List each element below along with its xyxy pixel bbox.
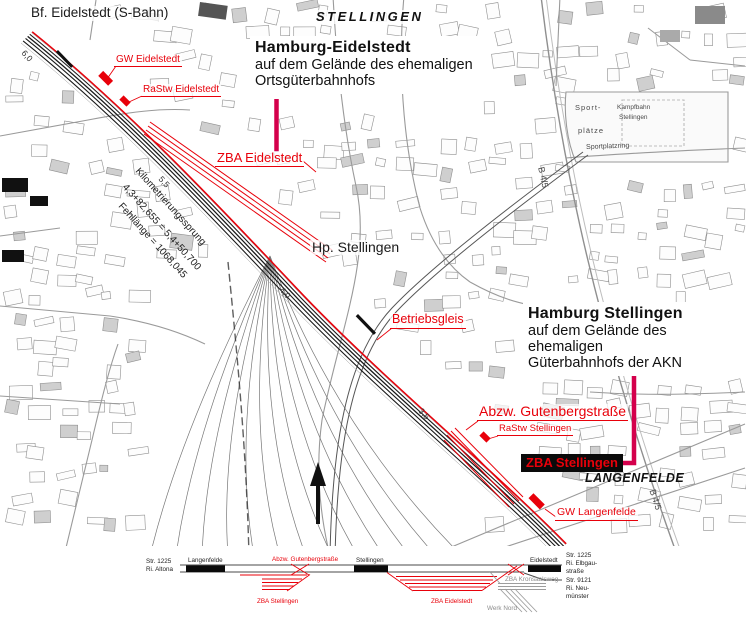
kampfbahn-label-2: Stellingen	[619, 114, 648, 121]
building	[468, 291, 479, 299]
building	[281, 27, 290, 36]
building	[125, 515, 145, 530]
building	[682, 250, 705, 261]
building	[33, 340, 57, 355]
building	[611, 224, 624, 233]
building	[104, 518, 116, 531]
building	[367, 138, 380, 148]
building	[627, 180, 643, 193]
building	[439, 231, 451, 244]
hp-stellingen-label: Hp. Stellingen	[310, 240, 401, 255]
building	[198, 54, 212, 71]
building	[17, 338, 32, 350]
building	[424, 299, 443, 311]
building	[607, 68, 619, 81]
building	[727, 208, 745, 220]
building	[704, 420, 721, 432]
yard-track	[270, 256, 384, 546]
building	[57, 254, 77, 268]
right-route-line3: straße	[566, 568, 584, 575]
building	[53, 357, 69, 366]
building-block	[2, 178, 28, 192]
gw-langenfelde-marker	[529, 493, 545, 509]
building	[489, 366, 505, 378]
building	[62, 91, 74, 104]
building	[30, 472, 45, 482]
yard-track	[176, 256, 270, 546]
building	[703, 518, 713, 531]
building	[420, 341, 431, 355]
building	[446, 272, 458, 279]
building-block	[695, 6, 725, 24]
building	[38, 361, 54, 376]
building	[12, 493, 33, 506]
building	[664, 190, 675, 202]
yard-track	[150, 256, 270, 546]
building	[125, 351, 140, 363]
north-arrow	[310, 462, 326, 524]
building	[509, 274, 529, 287]
building	[637, 75, 655, 91]
region-stellingen-label: STELLINGEN	[314, 10, 425, 24]
building	[31, 268, 49, 284]
right-route-line1: Str. 1225	[566, 552, 592, 559]
building	[495, 142, 513, 154]
building	[103, 318, 119, 333]
building	[531, 226, 547, 241]
building	[590, 224, 602, 233]
building	[374, 299, 386, 309]
building	[4, 205, 17, 218]
building	[729, 424, 741, 434]
building	[678, 496, 702, 511]
building	[472, 254, 484, 265]
building	[605, 256, 618, 263]
eidelstedt-annotation: Hamburg-Eidelstedt auf dem Gelände des e…	[250, 36, 482, 94]
map-page: Bf. Eidelstedt (S-Bahn) STELLINGEN Hambu…	[0, 0, 746, 621]
building	[705, 495, 722, 505]
building	[341, 153, 365, 167]
building	[611, 519, 627, 534]
building	[704, 34, 712, 46]
building	[58, 489, 78, 506]
building	[485, 516, 504, 532]
building	[317, 157, 336, 168]
building	[436, 4, 447, 13]
schematic-stations	[186, 566, 561, 573]
track-schematic: Str. 1225 Ri. Altona Langenfelde Abzw. G…	[0, 545, 746, 621]
building	[413, 163, 437, 177]
right-route-line2: Ri. Elbgau-	[566, 560, 597, 567]
building	[129, 290, 151, 302]
building	[469, 159, 487, 173]
rastw-eidelstedt-marker	[119, 95, 130, 106]
stellingen-label: Stellingen	[356, 557, 384, 564]
building	[628, 32, 639, 44]
building	[375, 158, 385, 167]
building	[536, 200, 553, 214]
building	[657, 274, 671, 287]
building	[658, 209, 668, 217]
building	[660, 247, 676, 260]
building	[608, 269, 618, 284]
building	[101, 291, 111, 299]
building	[321, 212, 340, 218]
building	[486, 2, 501, 19]
building	[682, 31, 690, 38]
sportplaetze-label-2: plätze	[578, 126, 604, 135]
building	[370, 186, 384, 199]
building-block	[660, 30, 680, 42]
building	[495, 340, 514, 353]
building	[495, 29, 512, 46]
building	[394, 271, 407, 287]
yard-track	[270, 256, 332, 546]
building	[469, 362, 482, 371]
right-route-line5: Ri. Neu-	[566, 585, 589, 592]
building	[680, 422, 698, 434]
building	[580, 425, 604, 440]
red-facility-markers	[98, 71, 545, 510]
building	[727, 33, 746, 47]
building	[320, 25, 331, 34]
building	[170, 26, 192, 44]
building	[729, 515, 746, 523]
building	[248, 118, 261, 132]
building	[446, 361, 462, 369]
building	[279, 116, 295, 130]
left-route-line1: Str. 1225	[146, 558, 172, 565]
building	[579, 46, 597, 56]
building	[60, 317, 75, 332]
building	[100, 465, 108, 471]
building	[60, 425, 77, 438]
building	[517, 53, 539, 68]
building	[219, 73, 236, 88]
stellingen-station-bar	[354, 566, 388, 573]
building	[124, 402, 136, 416]
stellingen-annotation-line2: Güterbahnhofs der AKN	[528, 355, 737, 371]
building	[104, 254, 125, 266]
building	[516, 177, 533, 189]
sportplaetze-label-1: Sport-	[575, 103, 601, 112]
abzw-gutenbergstrasse-label: Abzw. Gutenbergstraße	[477, 404, 628, 421]
building	[702, 181, 714, 190]
building	[638, 267, 649, 279]
region-langenfelde-label: LANGENFELDE	[585, 472, 684, 486]
stellingen-annotation-title: Hamburg Stellingen	[528, 305, 737, 323]
building	[14, 313, 26, 325]
building	[568, 276, 578, 283]
building	[484, 102, 494, 114]
zba-eidelstedt-label: ZBA Eidelstedt	[215, 151, 304, 167]
zba-stellingen-box: ZBA Stellingen	[521, 454, 623, 472]
building	[55, 336, 77, 351]
building	[496, 267, 507, 275]
building	[684, 225, 707, 241]
building	[440, 167, 453, 183]
building	[535, 117, 556, 134]
eidelstedt-label: Eidelstedt	[530, 557, 558, 564]
building	[56, 470, 75, 481]
building	[492, 51, 515, 68]
building	[681, 407, 698, 421]
building	[705, 233, 723, 250]
betriebsgleis-label: Betriebsgleis	[390, 313, 466, 329]
building	[34, 511, 51, 523]
building	[353, 184, 368, 194]
building	[604, 202, 623, 220]
building	[106, 167, 122, 176]
building	[49, 159, 69, 174]
right-route-line4: Str. 9121	[566, 577, 592, 584]
building	[232, 7, 247, 22]
yard-track	[260, 256, 280, 546]
yard-track	[270, 256, 358, 546]
building	[558, 10, 573, 24]
building	[397, 196, 420, 211]
zba-kronsaalsweg-label: ZBA Kronsaalsweg	[505, 576, 559, 583]
building	[729, 75, 744, 85]
bf-eidelstedt-label: Bf. Eidelstedt (S-Bahn)	[29, 6, 170, 21]
building	[520, 143, 533, 158]
building	[492, 246, 501, 255]
building	[387, 25, 406, 36]
building	[515, 210, 533, 221]
building	[557, 46, 579, 58]
kampfbahn-label-1: Kampfbahn	[617, 104, 650, 111]
building	[724, 184, 745, 194]
building	[33, 246, 49, 261]
left-route-line2: Ri. Altona	[146, 566, 173, 573]
building	[489, 157, 506, 165]
building	[732, 474, 746, 489]
building	[412, 233, 424, 240]
building	[676, 292, 685, 303]
rastw-stellingen-marker	[479, 431, 490, 442]
building	[128, 340, 145, 353]
gw-langenfelde-label: GW Langenfelde	[555, 507, 638, 521]
building	[10, 78, 23, 93]
building	[105, 380, 118, 393]
building	[514, 75, 525, 86]
building	[683, 184, 692, 198]
building	[128, 446, 149, 456]
building	[439, 22, 459, 37]
building	[465, 137, 477, 151]
zba-eidelstedt-yard-label: ZBA Eidelstedt	[431, 598, 473, 605]
building	[586, 1, 603, 15]
building	[298, 180, 316, 193]
building	[77, 432, 90, 440]
building	[106, 365, 121, 379]
building-block	[198, 2, 228, 20]
eidelstedt-station-bar	[528, 566, 561, 573]
rastw-stellingen-label: RaStw Stellingen	[497, 424, 573, 436]
eidelstedt-annotation-line1: auf dem Gelände des ehemaligen	[255, 57, 473, 73]
building	[40, 382, 61, 391]
eidelstedt-annotation-title: Hamburg-Eidelstedt	[255, 39, 473, 57]
building-block	[2, 250, 24, 262]
building	[656, 408, 669, 423]
building	[616, 52, 630, 69]
building	[303, 140, 313, 148]
rastw-eidelstedt-label: RaStw Eidelstedt	[141, 84, 221, 97]
building	[265, 8, 280, 25]
building	[733, 137, 746, 154]
building	[682, 270, 707, 289]
building	[28, 405, 51, 419]
building	[543, 383, 558, 394]
langenfelde-label: Langenfelde	[188, 557, 223, 564]
building	[58, 275, 77, 286]
building	[735, 224, 745, 232]
building	[702, 447, 725, 459]
building	[461, 201, 476, 214]
building	[76, 231, 97, 244]
building	[441, 188, 458, 200]
building	[34, 116, 49, 127]
building	[107, 137, 124, 152]
werk-nord-label: Werk Nord	[487, 605, 517, 612]
building	[34, 316, 54, 326]
building	[614, 495, 623, 504]
building	[63, 409, 78, 416]
building	[3, 289, 23, 306]
right-route-line6: münster	[566, 593, 589, 600]
eidelstedt-annotation-line2: Ortsgüterbahnhofs	[255, 73, 473, 89]
building	[31, 145, 47, 157]
building	[6, 96, 23, 102]
building	[5, 508, 25, 525]
langenfelde-station-bar	[186, 566, 225, 573]
building	[26, 445, 44, 460]
building	[656, 222, 667, 230]
gutenbergstrasse-junction-label: Abzw. Gutenbergstraße	[272, 556, 339, 563]
building	[396, 140, 415, 148]
building	[104, 184, 122, 198]
building	[112, 422, 131, 434]
zba-stellingen-yard-label: ZBA Stellingen	[257, 598, 299, 605]
building	[85, 285, 103, 297]
hp-stellingen-platform	[356, 314, 376, 335]
building	[638, 233, 646, 240]
building	[707, 273, 732, 290]
building	[75, 274, 93, 285]
building	[441, 139, 457, 155]
building	[279, 190, 294, 206]
building	[564, 185, 577, 196]
building	[89, 160, 104, 174]
building	[713, 70, 728, 81]
building	[361, 114, 374, 131]
building	[29, 295, 40, 305]
building	[222, 100, 234, 108]
building	[442, 296, 460, 309]
stellingen-annotation-line1: auf dem Gelände des ehemaligen	[528, 323, 737, 355]
stellingen-annotation: Hamburg Stellingen auf dem Gelände des e…	[523, 302, 746, 376]
building	[29, 71, 39, 81]
building-block	[30, 196, 48, 206]
building	[634, 5, 643, 12]
building	[5, 399, 20, 414]
building	[564, 380, 583, 395]
building	[76, 246, 95, 256]
building	[200, 122, 220, 135]
gw-eidelstedt-label: GW Eidelstedt	[114, 54, 182, 67]
